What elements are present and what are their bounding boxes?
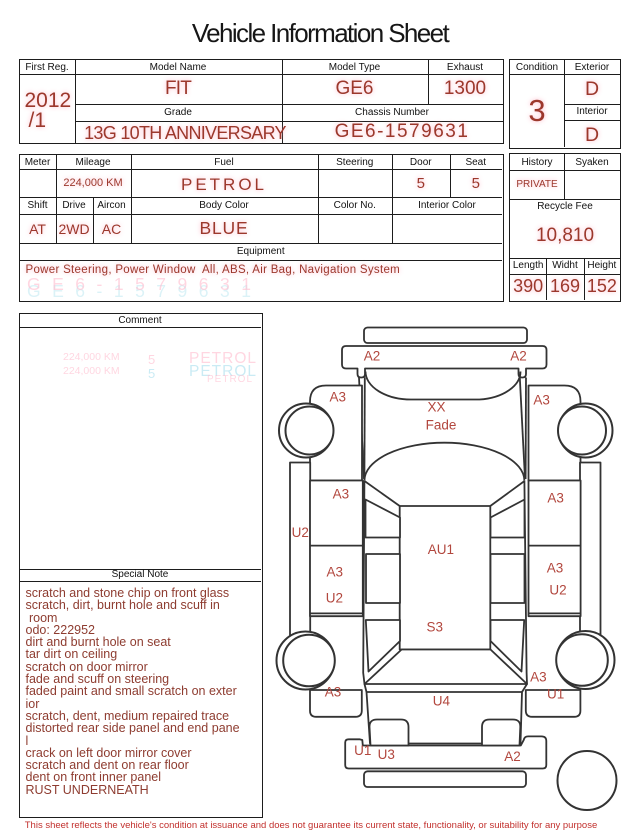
svg-text:Fade: Fade bbox=[426, 418, 457, 433]
svg-text:U2: U2 bbox=[292, 525, 309, 540]
svg-text:A3: A3 bbox=[325, 685, 342, 700]
svg-text:U3: U3 bbox=[378, 747, 395, 762]
svg-text:A3: A3 bbox=[326, 565, 343, 580]
svg-text:AU1: AU1 bbox=[428, 542, 454, 557]
svg-text:A2: A2 bbox=[504, 749, 521, 764]
svg-text:A3: A3 bbox=[547, 491, 564, 506]
svg-text:A3: A3 bbox=[547, 561, 564, 576]
svg-text:A3: A3 bbox=[330, 390, 347, 405]
svg-text:U2: U2 bbox=[326, 591, 343, 606]
svg-text:U4: U4 bbox=[433, 694, 451, 709]
svg-text:XX: XX bbox=[427, 400, 445, 415]
svg-text:A3: A3 bbox=[533, 393, 550, 408]
svg-text:A2: A2 bbox=[510, 349, 527, 364]
svg-text:U2: U2 bbox=[549, 583, 566, 598]
svg-text:U1: U1 bbox=[354, 743, 371, 758]
svg-text:A3: A3 bbox=[530, 670, 547, 685]
svg-text:A3: A3 bbox=[333, 487, 350, 502]
svg-text:A2: A2 bbox=[364, 349, 381, 364]
svg-text:S3: S3 bbox=[426, 620, 443, 635]
svg-text:U1: U1 bbox=[547, 687, 564, 702]
